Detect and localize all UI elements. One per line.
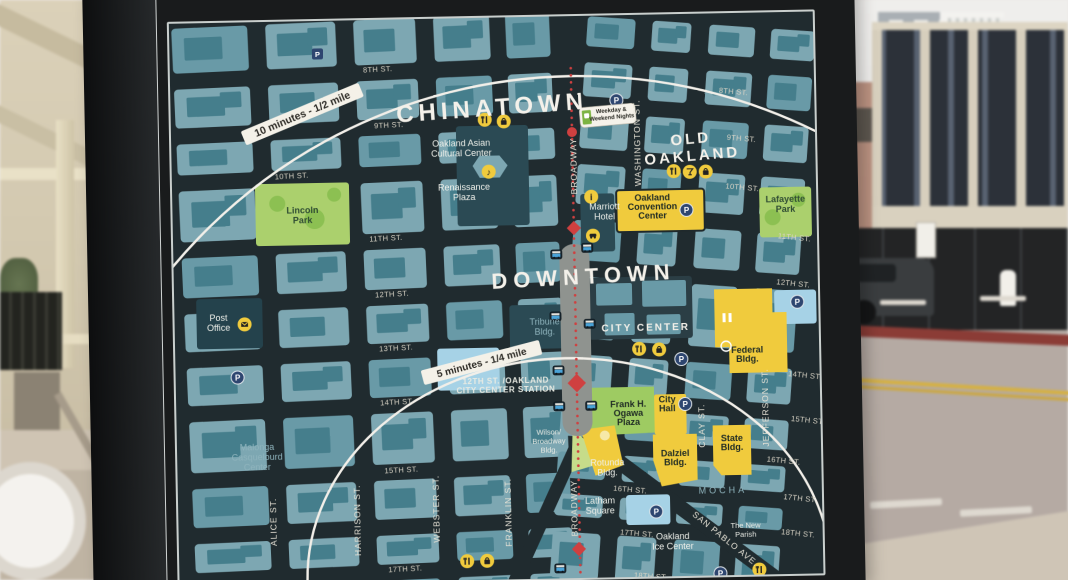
building-footprint	[292, 370, 328, 391]
street-sign	[916, 222, 936, 258]
building-footprint	[414, 537, 432, 549]
street-franklin: FRANKLIN ST.	[503, 478, 514, 547]
street-12th-w: 12TH ST.	[375, 289, 409, 300]
building-footprint	[790, 131, 803, 146]
building-footprint	[220, 91, 242, 108]
street-8th-w: 8TH ST.	[363, 64, 393, 75]
building-footprint	[453, 254, 482, 275]
svg-text:BROADWAY: BROADWAY	[568, 138, 579, 195]
building-footprint	[591, 70, 616, 89]
building-footprint	[716, 32, 740, 49]
street-webster: WEBSTER ST.	[431, 475, 442, 543]
building-footprint	[387, 541, 419, 557]
svg-text:DalzielBldg.: DalzielBldg.	[661, 448, 690, 468]
svg-text:P: P	[679, 355, 685, 364]
building-footprint	[379, 367, 411, 387]
svg-text:CityHall: CityHall	[659, 394, 676, 413]
street-clay: CLAY ST.	[696, 404, 707, 448]
place-post-office: PostOffice	[207, 313, 231, 333]
svg-text:9TH ST.: 9TH ST.	[374, 120, 404, 131]
fence	[0, 292, 62, 370]
building-footprint	[240, 545, 262, 558]
building-footprint	[661, 230, 673, 247]
building-footprint	[467, 20, 483, 39]
place-mocha: MOCHA	[699, 485, 748, 496]
svg-text:FederalBldg.: FederalBldg.	[731, 344, 763, 364]
bus-stop-icon	[582, 243, 593, 252]
bus-stop-icon	[554, 402, 565, 411]
svg-text:P: P	[235, 373, 241, 382]
street-jefferson: JEFFERSON ST.	[760, 368, 771, 446]
svg-text:CITY CENTER: CITY CENTER	[601, 322, 690, 335]
building-footprint	[692, 370, 716, 390]
building-footprint	[701, 237, 725, 259]
parking-icon: P	[231, 371, 244, 384]
deco-building	[872, 30, 1068, 220]
parking-icon: P	[791, 295, 804, 308]
svg-text:13TH ST.: 13TH ST.	[379, 343, 413, 354]
building-footprint	[287, 261, 323, 283]
svg-text:BROADWAY: BROADWAY	[569, 480, 580, 537]
federal-bldg-glyph	[728, 313, 731, 322]
building-footprint	[184, 36, 223, 60]
svg-text:PostOffice: PostOffice	[207, 313, 231, 333]
svg-text:P: P	[315, 50, 320, 59]
place-city-hall: CityHall	[659, 394, 676, 413]
svg-text:12TH ST.: 12TH ST.	[375, 289, 409, 300]
building-footprint	[207, 548, 246, 564]
building-footprint	[763, 241, 786, 262]
street-13th-w: 13TH ST.	[379, 343, 413, 354]
station-12th-st-oakland: 12TH ST. /OAKLANDCITY CENTER STATION	[456, 375, 555, 395]
svg-text:11TH ST.: 11TH ST.	[369, 233, 403, 244]
street-18th-c: 18TH ST.	[634, 571, 668, 580]
building-footprint	[770, 133, 793, 152]
federal-bldg-glyph	[722, 313, 725, 322]
bus-stop-icon	[551, 250, 562, 259]
sign-side-face	[82, 0, 168, 580]
building-footprint	[622, 546, 643, 570]
svg-text:P: P	[614, 96, 620, 105]
svg-text:10TH ST.: 10TH ST.	[275, 171, 309, 182]
street-17th-w: 17TH ST.	[388, 563, 422, 574]
svg-text:Oakland AsianCultural Center: Oakland AsianCultural Center	[431, 138, 492, 159]
building-footprint	[704, 506, 717, 516]
building-footprint	[393, 84, 411, 100]
building-footprint	[477, 249, 493, 266]
parking-icon: P	[680, 203, 693, 216]
bus-stop-icon	[584, 319, 595, 328]
left-building-recess	[14, 372, 60, 430]
building-footprint	[488, 480, 504, 496]
svg-text:OaklandIce Center: OaklandIce Center	[652, 531, 694, 552]
svg-text:ALICE ST.: ALICE ST.	[268, 498, 279, 546]
building-footprint	[318, 256, 338, 273]
street-washington: WASHINGTON ST.	[631, 99, 643, 186]
svg-text:P: P	[684, 206, 690, 215]
road	[830, 330, 1068, 545]
parking-icon: P	[679, 397, 692, 410]
building-footprint	[384, 488, 416, 509]
building-footprint	[605, 171, 619, 188]
building-footprint	[366, 88, 398, 109]
wayfinding-map: PPPPPPPPPi♪Weekday &Weekend NightsCHINAT…	[169, 11, 824, 580]
street-15th-w: 15TH ST.	[384, 465, 418, 476]
place-latham-square: LathamSquare	[585, 495, 615, 516]
place-dalziel-bldg: DalzielBldg.	[661, 448, 690, 468]
svg-text:FRANKLIN ST.: FRANKLIN ST.	[503, 478, 514, 547]
building-footprint	[512, 22, 535, 45]
svg-text:CLAY ST.: CLAY ST.	[696, 404, 707, 448]
svg-text:♪: ♪	[486, 167, 491, 177]
parking-garage-icon: P	[312, 48, 323, 59]
place-oakland-asian-cultural-center: Oakland AsianCultural Center	[431, 138, 492, 159]
svg-text:P: P	[654, 507, 660, 516]
building-footprint	[205, 496, 244, 517]
wayfinding-sign: PPPPPPPPPi♪Weekday &Weekend NightsCHINAT…	[82, 0, 865, 580]
building-footprint	[460, 420, 489, 447]
place-federal-bldg: FederalBldg.	[731, 344, 763, 364]
svg-text:MOCHA: MOCHA	[699, 485, 748, 496]
building-footprint	[463, 484, 492, 505]
parking-icon: P	[675, 352, 688, 365]
building-footprint	[658, 28, 678, 44]
building-footprint	[643, 233, 664, 254]
lane-dash	[880, 300, 926, 305]
bus-stop-icon	[555, 564, 566, 573]
parking-icon: P	[714, 567, 727, 580]
building-footprint	[376, 313, 408, 333]
building-footprint	[408, 418, 426, 439]
building-footprint	[381, 424, 413, 451]
street-11th-w: 11TH ST.	[369, 233, 403, 244]
building-footprint	[186, 96, 225, 117]
building-footprint	[398, 187, 416, 208]
street-10th-w: 10TH ST.	[275, 171, 309, 182]
svg-text:P: P	[682, 400, 688, 409]
building-footprint	[307, 27, 327, 46]
place-city-center: CITY CENTER	[601, 322, 690, 335]
street-photo-scene: PPPPPPPPPi♪Weekday &Weekend NightsCHINAT…	[0, 0, 1068, 580]
building-footprint	[290, 317, 326, 338]
building-footprint	[363, 29, 395, 53]
svg-text:17TH ST.: 17TH ST.	[388, 563, 422, 574]
bus-stop-icon	[586, 401, 597, 410]
street-broadway-s: BROADWAY	[569, 480, 580, 537]
svg-text:StateBldg.: StateBldg.	[721, 433, 744, 452]
building-footprint	[295, 427, 331, 454]
building-footprint	[539, 181, 552, 202]
building-footprint	[466, 537, 495, 553]
building-footprint	[774, 83, 797, 101]
building-footprint	[797, 34, 810, 47]
building-footprint	[374, 257, 406, 278]
building-footprint	[368, 141, 400, 158]
building-footprint	[680, 550, 705, 575]
building-footprint	[777, 36, 800, 52]
building-footprint	[639, 542, 651, 561]
svg-text:18TH ST.: 18TH ST.	[634, 571, 668, 580]
building-footprint	[194, 265, 233, 287]
svg-text:HARRISON ST.: HARRISON ST.	[352, 484, 363, 556]
svg-text:15TH ST.: 15TH ST.	[384, 465, 418, 476]
building-footprint	[774, 372, 787, 387]
building-footprint	[403, 308, 421, 324]
building-footprint	[675, 26, 687, 39]
place-state-bldg: StateBldg.	[721, 433, 744, 452]
building-footprint	[455, 309, 484, 329]
lane-dash	[980, 296, 1026, 301]
svg-text:LathamSquare: LathamSquare	[585, 495, 615, 516]
building-footprint	[371, 193, 403, 220]
place-oakland-ice-center: OaklandIce Center	[652, 531, 694, 552]
svg-text:JEFFERSON ST.: JEFFERSON ST.	[760, 368, 771, 446]
svg-text:14TH ST.: 14TH ST.	[380, 397, 414, 408]
svg-text:i: i	[590, 192, 593, 202]
svg-text:WEBSTER ST.: WEBSTER ST.	[431, 475, 442, 543]
svg-text:P: P	[795, 298, 801, 307]
bus-stop-icon	[553, 366, 564, 375]
building-footprint	[767, 469, 780, 480]
street-9th-w: 9TH ST.	[374, 120, 404, 131]
svg-text:WASHINGTON ST.: WASHINGTON ST.	[631, 99, 643, 186]
suv-window	[856, 264, 896, 282]
street-alice: ALICE ST.	[268, 498, 279, 546]
building-footprint	[277, 32, 313, 56]
parking-icon: P	[650, 505, 663, 518]
svg-text:12TH ST. /OAKLANDCITY CENTER S: 12TH ST. /OAKLANDCITY CENTER STATION	[456, 375, 555, 395]
map-panel: PPPPPPPPPi♪Weekday &Weekend NightsCHINAT…	[167, 9, 826, 580]
building-footprint	[612, 68, 626, 82]
street-harrison: HARRISON ST.	[352, 484, 363, 556]
street-broadway-n: BROADWAY	[568, 138, 579, 195]
building-footprint	[442, 25, 471, 49]
building-footprint	[189, 149, 228, 166]
building-footprint	[594, 23, 619, 40]
svg-text:P: P	[718, 569, 724, 578]
building-footprint	[323, 366, 343, 382]
parking-structure	[626, 494, 671, 525]
svg-text:8TH ST.: 8TH ST.	[363, 64, 393, 75]
street-14th-w: 14TH ST.	[380, 397, 414, 408]
building-footprint	[651, 125, 672, 144]
building-footprint	[300, 544, 336, 560]
